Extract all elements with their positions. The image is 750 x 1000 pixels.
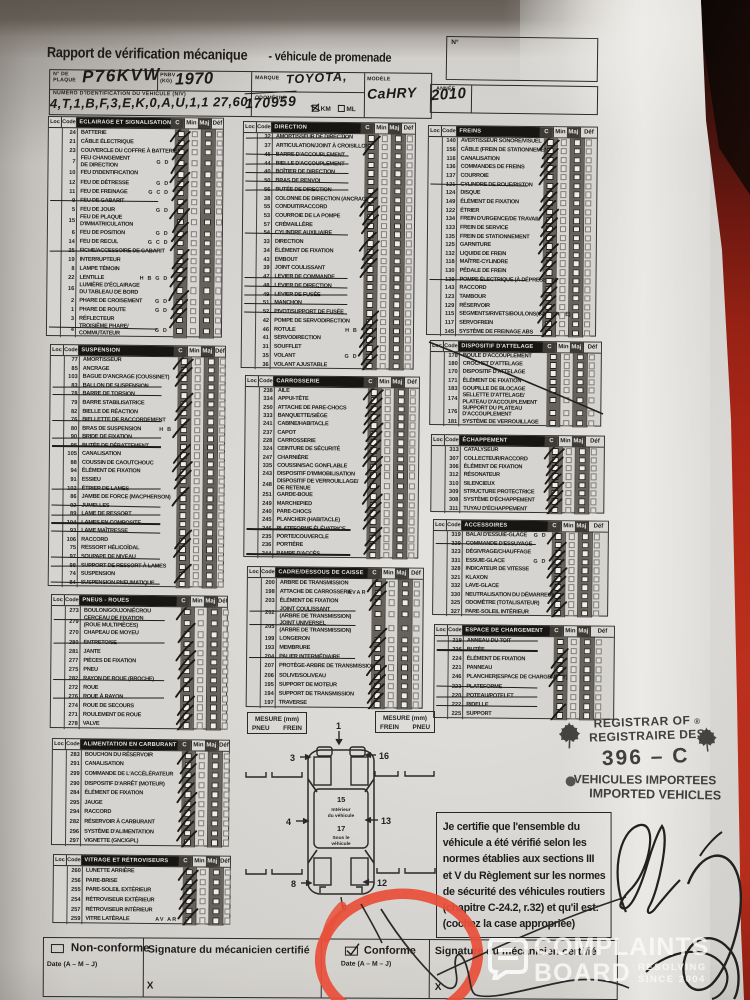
svg-text:9: 9 [342,903,347,913]
svg-text:1: 1 [336,721,341,731]
svg-text:16: 16 [379,751,389,761]
svg-text:17: 17 [337,824,345,833]
svg-text:12: 12 [377,878,387,888]
svg-text:3: 3 [290,753,295,763]
svg-text:véhicule: véhicule [331,841,351,847]
svg-text:du véhicule: du véhicule [328,813,355,819]
svg-text:4: 4 [286,817,291,827]
svg-text:8: 8 [291,879,296,889]
svg-text:Intérieur: Intérieur [331,807,350,813]
svg-text:Sous le: Sous le [332,835,349,841]
svg-text:15: 15 [337,795,345,804]
svg-text:13: 13 [381,816,391,826]
